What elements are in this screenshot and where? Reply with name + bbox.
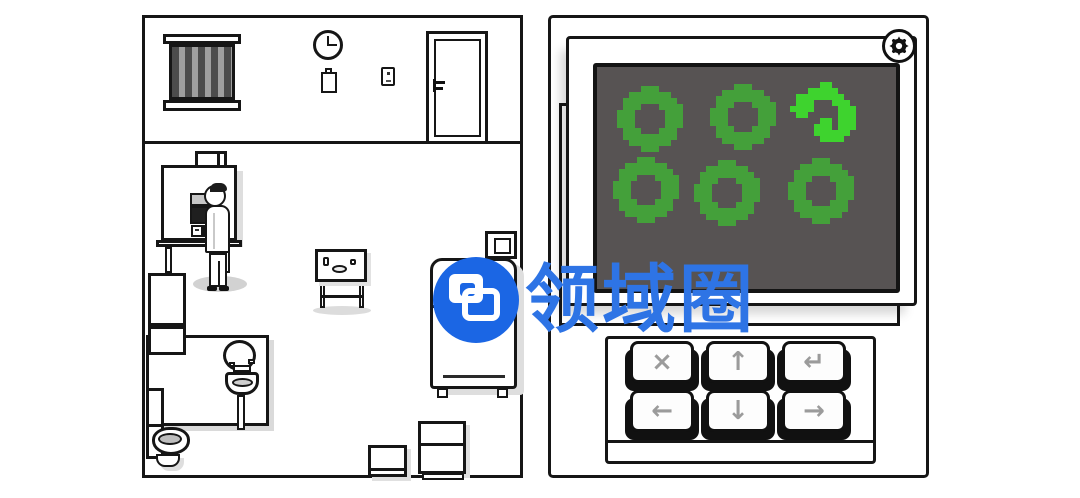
door-handle-bar xyxy=(436,81,445,84)
device-panel: ×↑↵←↓→ xyxy=(548,15,929,478)
fridge-upper[interactable] xyxy=(148,273,186,326)
key-cancel[interactable]: × xyxy=(625,341,699,391)
character-arm xyxy=(213,213,215,249)
legs-gap xyxy=(218,261,220,287)
sink-spout xyxy=(248,359,255,364)
sink-faucet[interactable] xyxy=(233,365,251,372)
box-line xyxy=(371,468,404,471)
left-glyph: ← xyxy=(630,390,694,432)
machine-foot xyxy=(437,388,448,398)
toilet-seat xyxy=(158,433,182,445)
key-down[interactable]: ↓ xyxy=(701,390,775,440)
door-handle-bar xyxy=(436,87,443,90)
pixel-ring-active-3 xyxy=(790,82,856,148)
game-screen: ×↑↵←↓→ 领域圈 xyxy=(0,0,1080,498)
light-switch[interactable] xyxy=(381,67,395,86)
key-right[interactable]: → xyxy=(777,390,851,440)
window-cornice xyxy=(163,34,241,44)
character-shoe xyxy=(219,286,229,291)
down-glyph: ↓ xyxy=(706,390,770,432)
cancel-glyph: × xyxy=(630,341,694,383)
character-hair xyxy=(210,183,227,192)
pixel-ring-idle-4 xyxy=(613,157,679,223)
sink-pedestal xyxy=(237,395,245,430)
keypad-base-line xyxy=(608,440,873,443)
box-line xyxy=(421,443,463,446)
pixel-ring-idle-1 xyxy=(617,86,683,152)
switch-slot xyxy=(386,80,391,82)
table-crossbar xyxy=(321,295,363,298)
machine-lid-line xyxy=(433,305,514,308)
washing-machine[interactable] xyxy=(430,258,517,389)
sink-bowl xyxy=(232,378,253,387)
cup[interactable] xyxy=(323,257,329,266)
plate[interactable] xyxy=(332,265,347,273)
clock-hour-hand xyxy=(328,44,337,46)
wall-clock[interactable] xyxy=(313,30,343,60)
window-sill xyxy=(163,100,241,111)
room-view xyxy=(142,15,523,478)
keypad: ×↑↵←↓→ xyxy=(605,336,876,464)
settings-gear-icon[interactable] xyxy=(882,29,916,63)
cup[interactable] xyxy=(350,259,356,265)
enter-glyph: ↵ xyxy=(782,341,846,383)
box-label xyxy=(494,238,511,254)
character-torso xyxy=(205,205,230,253)
table-leg xyxy=(165,247,172,273)
up-glyph: ↑ xyxy=(706,341,770,383)
right-glyph: → xyxy=(782,390,846,432)
carton-box-large[interactable] xyxy=(418,421,466,474)
barred-window[interactable] xyxy=(169,44,235,100)
notepad[interactable] xyxy=(321,72,337,93)
character-shoe xyxy=(207,286,217,291)
switch-toggle xyxy=(387,72,390,75)
detergent-box[interactable] xyxy=(485,231,517,259)
character-legs xyxy=(209,253,227,287)
toilet-base xyxy=(156,454,180,467)
pixel-ring-idle-6 xyxy=(788,158,854,224)
pixel-ring-idle-2 xyxy=(710,84,776,150)
tank-lid-line xyxy=(149,424,161,427)
key-up[interactable]: ↑ xyxy=(701,341,775,391)
monitor-screen xyxy=(593,63,900,293)
box-base xyxy=(422,473,464,480)
key-left[interactable]: ← xyxy=(625,390,699,440)
fridge-lower[interactable] xyxy=(148,326,186,355)
key-enter[interactable]: ↵ xyxy=(777,341,851,391)
machine-foot xyxy=(497,388,508,398)
character[interactable] xyxy=(201,183,237,293)
machine-slot xyxy=(443,375,505,378)
door[interactable] xyxy=(426,31,488,144)
monitor xyxy=(566,36,917,306)
pixel-ring-idle-5 xyxy=(694,160,760,226)
sink[interactable] xyxy=(225,372,259,395)
carton-box-small[interactable] xyxy=(368,445,407,477)
